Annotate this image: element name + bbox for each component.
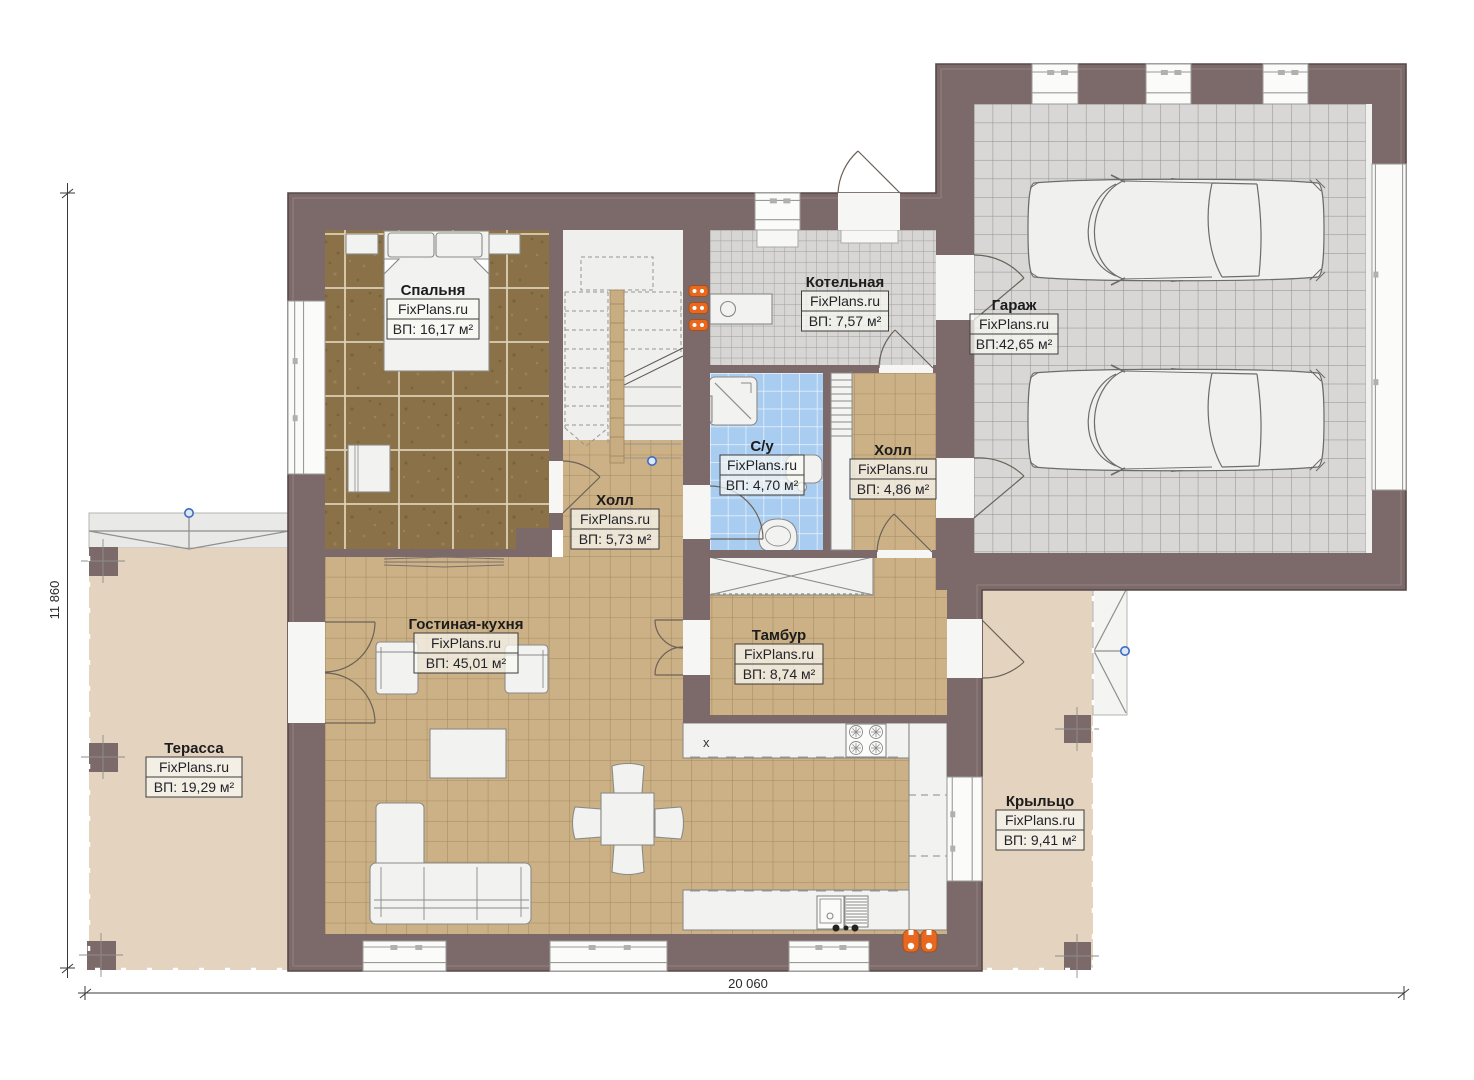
svg-text:ВП: 4,86 м²: ВП: 4,86 м² (857, 481, 930, 497)
svg-text:FixPlans.ru: FixPlans.ru (159, 759, 229, 775)
svg-text:Холл: Холл (596, 492, 634, 509)
svg-text:ВП: 5,73 м²: ВП: 5,73 м² (579, 531, 652, 547)
svg-text:x: x (703, 735, 710, 750)
svg-text:FixPlans.ru: FixPlans.ru (727, 457, 797, 473)
svg-text:Крыльцо: Крыльцо (1006, 793, 1074, 810)
svg-text:Котельная: Котельная (806, 274, 885, 291)
svg-text:20 060: 20 060 (728, 976, 768, 991)
svg-text:FixPlans.ru: FixPlans.ru (979, 316, 1049, 332)
svg-text:FixPlans.ru: FixPlans.ru (858, 461, 928, 477)
svg-text:11 860: 11 860 (47, 581, 62, 620)
svg-text:ВП: 9,41 м²: ВП: 9,41 м² (1004, 832, 1077, 848)
svg-text:ВП: 16,17 м²: ВП: 16,17 м² (393, 321, 474, 337)
svg-text:Терасса: Терасса (164, 740, 224, 757)
svg-text:Холл: Холл (874, 442, 912, 459)
svg-text:Гостиная-кухня: Гостиная-кухня (409, 616, 524, 633)
svg-text:ВП: 7,57 м²: ВП: 7,57 м² (809, 313, 882, 329)
svg-text:ВП: 19,29 м²: ВП: 19,29 м² (154, 779, 235, 795)
svg-text:Спальня: Спальня (401, 282, 466, 299)
svg-text:Тамбур: Тамбур (752, 627, 806, 644)
svg-text:FixPlans.ru: FixPlans.ru (810, 293, 880, 309)
svg-text:ВП: 45,01 м²: ВП: 45,01 м² (426, 655, 507, 671)
svg-text:Гараж: Гараж (992, 297, 1037, 314)
svg-text:FixPlans.ru: FixPlans.ru (580, 511, 650, 527)
svg-text:FixPlans.ru: FixPlans.ru (431, 635, 501, 651)
svg-text:FixPlans.ru: FixPlans.ru (744, 646, 814, 662)
svg-text:ВП: 8,74 м²: ВП: 8,74 м² (743, 666, 816, 682)
svg-text:FixPlans.ru: FixPlans.ru (1005, 812, 1075, 828)
svg-text:FixPlans.ru: FixPlans.ru (398, 301, 468, 317)
svg-text:С/у: С/у (750, 438, 774, 455)
svg-text:ВП:42,65 м²: ВП:42,65 м² (976, 336, 1053, 352)
svg-text:ВП: 4,70 м²: ВП: 4,70 м² (726, 477, 799, 493)
